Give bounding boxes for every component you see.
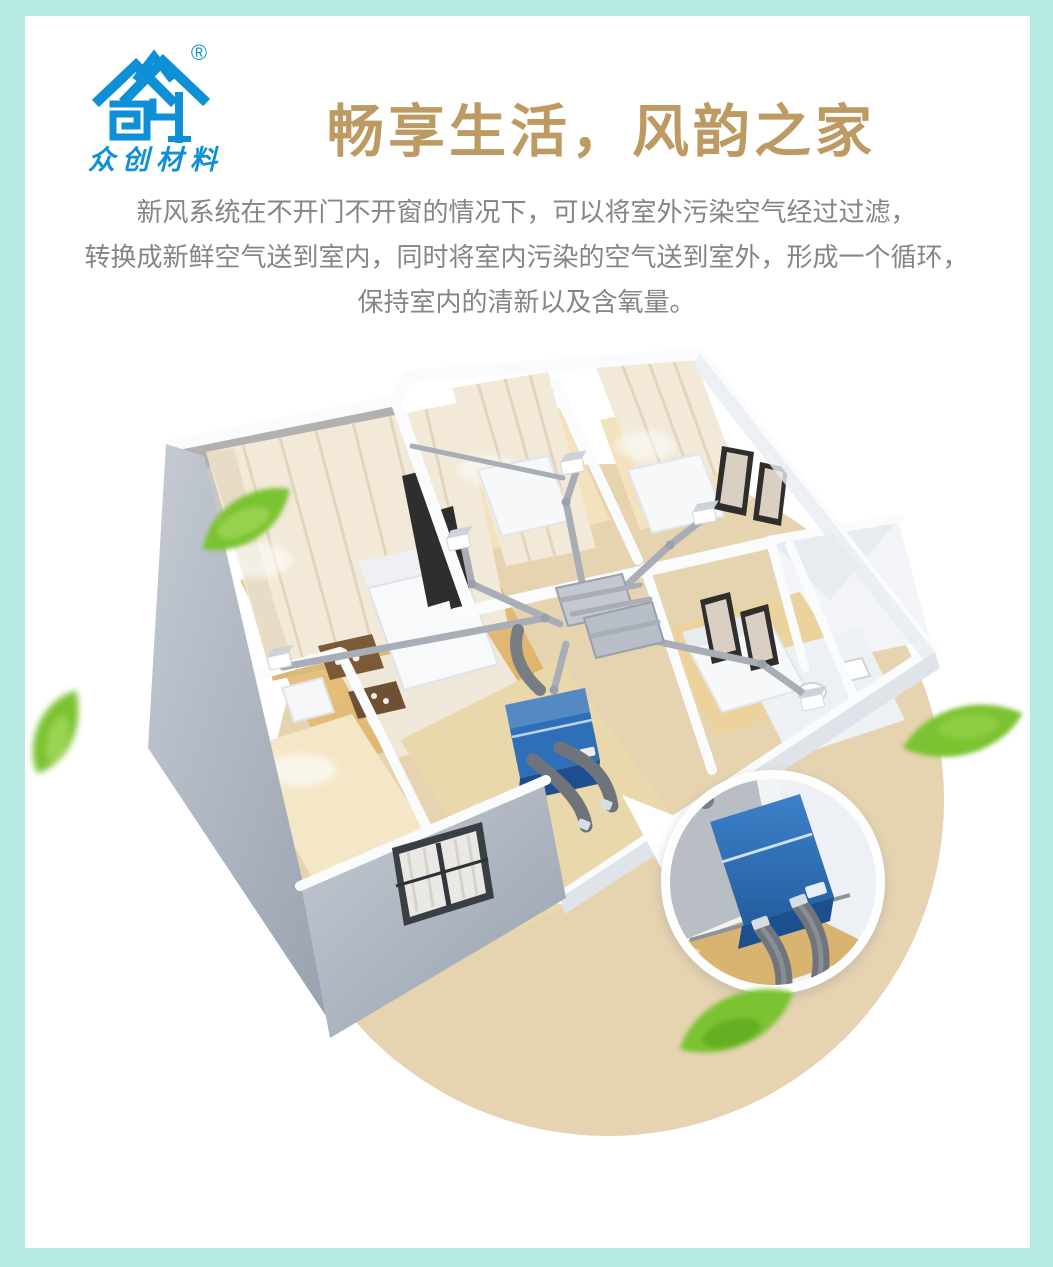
intro-line: 新风系统在不开门不开窗的情况下，可以将室外污染空气经过过滤， <box>0 190 1053 235</box>
intro-line: 转换成新鲜空气送到室内，同时将室内污染的空气送到室外，形成一个循环， <box>0 235 1053 280</box>
promo-page: ® 众创材料 畅享生活，风韵之家 新风系统在不开门不开窗的情况下，可以将室外污染… <box>0 0 1053 1267</box>
page-title: 畅享生活，风韵之家 <box>0 86 1053 168</box>
intro-line: 保持室内的清新以及含氧量。 <box>0 280 1053 325</box>
intro-paragraph: 新风系统在不开门不开窗的情况下，可以将室外污染空气经过过滤， 转换成新鲜空气送到… <box>0 190 1053 325</box>
registered-mark: ® <box>191 42 207 65</box>
